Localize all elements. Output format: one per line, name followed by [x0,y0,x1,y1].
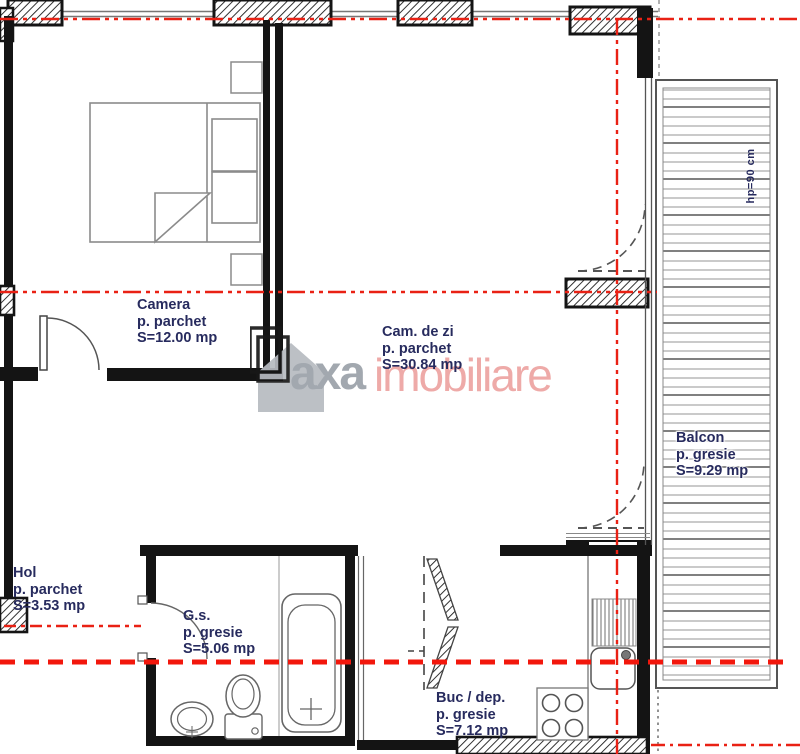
toilet-bowl [226,675,260,717]
room-label-gs: G.s. p. gresie S=5.06 mp [183,608,255,658]
floor-plan: axa imobiliare Camera p. parchet S=12.00… [0,0,800,754]
bed [90,103,260,242]
stove [537,688,588,740]
room-label-camera: Camera p. parchet S=12.00 mp [137,297,217,347]
room-label-buc: Buc / dep. p. gresie S=7.12 mp [436,690,508,740]
top-facade-wall [0,0,658,41]
balcony-door-upper [578,204,645,271]
toilet-tank [225,714,262,739]
bedroom-door [40,316,99,370]
room-label-cam-de-zi: Cam. de zi p. parchet S=30.84 mp [382,324,462,374]
balcony-door-lower [566,462,650,538]
dish-rack [592,599,636,646]
balcony-parapet-note: hp=90 cm [745,130,759,222]
balcony-structure [646,0,778,754]
kitchen-fixtures [537,556,636,740]
room-label-balcon: Balcon p. gresie S=9.29 mp [676,430,748,480]
folding-closet-door [408,556,458,690]
watermark-brand: axa [290,350,364,398]
room-label-hol: Hol p. parchet S=3.53 mp [13,565,85,615]
